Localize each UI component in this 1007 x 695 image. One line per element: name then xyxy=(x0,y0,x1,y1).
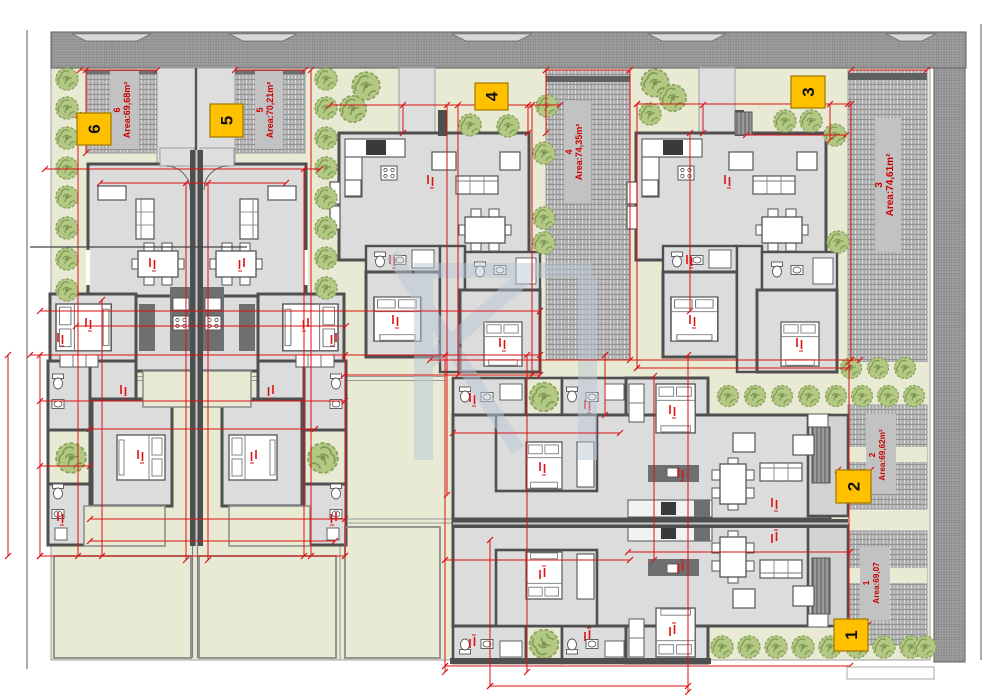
svg-text:Area:74,35m²: Area:74,35m² xyxy=(574,124,584,181)
svg-text:5: 5 xyxy=(255,107,265,112)
svg-text:6: 6 xyxy=(112,107,122,112)
svg-text:3: 3 xyxy=(799,87,818,96)
svg-text:2: 2 xyxy=(845,482,864,491)
svg-text:1: 1 xyxy=(842,630,861,639)
svg-text:Area:74,61m²: Area:74,61m² xyxy=(885,153,896,216)
svg-text:1: 1 xyxy=(862,580,871,585)
svg-text:Area:70,21m²: Area:70,21m² xyxy=(265,82,275,139)
svg-text:4: 4 xyxy=(564,149,574,154)
svg-text:Area:69,62m²: Area:69,62m² xyxy=(878,429,887,481)
svg-text:Area:69,07: Area:69,07 xyxy=(872,562,881,604)
svg-text:Area:69,68m²: Area:69,68m² xyxy=(122,82,132,139)
svg-text:2: 2 xyxy=(868,452,877,457)
svg-text:3: 3 xyxy=(874,182,885,188)
svg-text:5: 5 xyxy=(218,116,237,125)
svg-text:4: 4 xyxy=(483,91,502,101)
svg-text:6: 6 xyxy=(85,124,104,133)
